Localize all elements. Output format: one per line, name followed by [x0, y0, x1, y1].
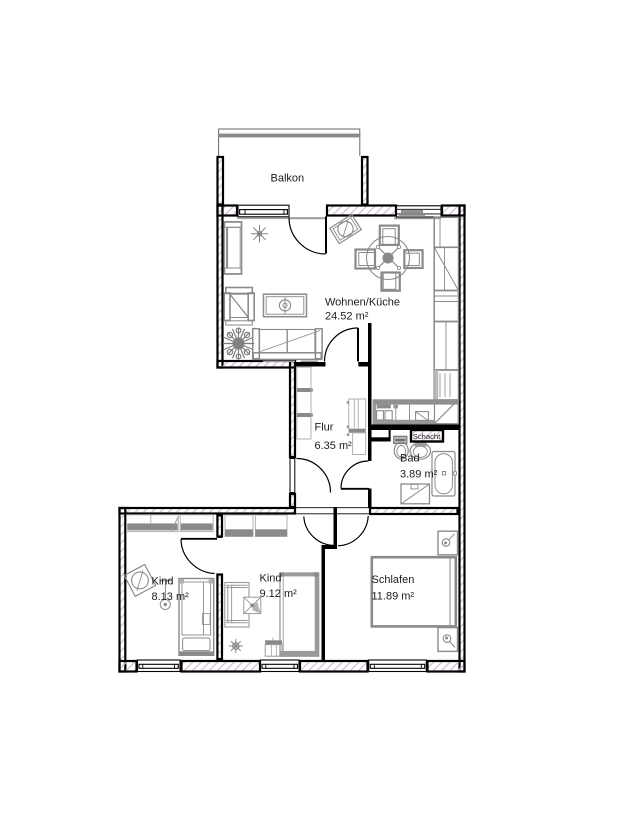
svg-text:Kind: Kind [260, 573, 282, 585]
svg-text:Wohnen/Küche: Wohnen/Küche [325, 297, 400, 309]
svg-text:Bad: Bad [400, 453, 420, 465]
svg-text:Kind: Kind [152, 576, 174, 588]
svg-text:6.35 m²: 6.35 m² [315, 440, 353, 452]
svg-text:3.89 m²: 3.89 m² [400, 469, 438, 481]
svg-text:24.52 m²: 24.52 m² [325, 311, 369, 323]
svg-text:8.13 m²: 8.13 m² [152, 591, 190, 603]
svg-text:Flur: Flur [315, 422, 334, 434]
svg-text:Schacht: Schacht [413, 432, 441, 441]
svg-text:11.89 m²: 11.89 m² [372, 591, 415, 603]
svg-text:9.12 m²: 9.12 m² [260, 588, 298, 600]
svg-text:Balkon: Balkon [271, 173, 305, 185]
svg-text:Schlafen: Schlafen [372, 574, 415, 586]
